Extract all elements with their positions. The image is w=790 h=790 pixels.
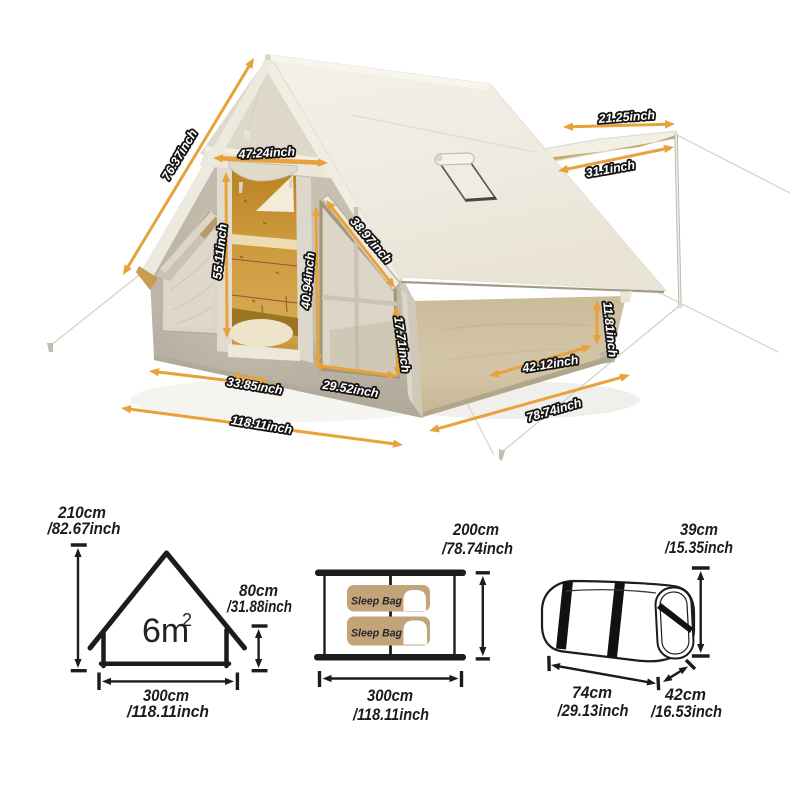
svg-text:/118.11inch: /118.11inch: [352, 705, 429, 724]
svg-text:74cm: 74cm: [572, 683, 612, 702]
svg-text:/31.88inch: /31.88inch: [226, 597, 292, 616]
svg-text:Sleep Bag: Sleep Bag: [351, 596, 402, 608]
svg-text:/16.53inch: /16.53inch: [650, 702, 722, 721]
svg-text:2: 2: [182, 610, 192, 630]
svg-text:/118.11inch: /118.11inch: [126, 702, 209, 721]
svg-text:/29.13inch: /29.13inch: [557, 701, 629, 720]
svg-text:200cm: 200cm: [452, 520, 499, 539]
svg-text:Sleep Bag: Sleep Bag: [351, 628, 402, 640]
svg-text:39cm: 39cm: [680, 520, 718, 539]
svg-text:300cm: 300cm: [367, 686, 413, 705]
svg-text:/15.35inch: /15.35inch: [664, 538, 733, 557]
svg-text:/82.67inch: /82.67inch: [47, 519, 121, 538]
svg-text:/78.74inch: /78.74inch: [441, 539, 513, 558]
